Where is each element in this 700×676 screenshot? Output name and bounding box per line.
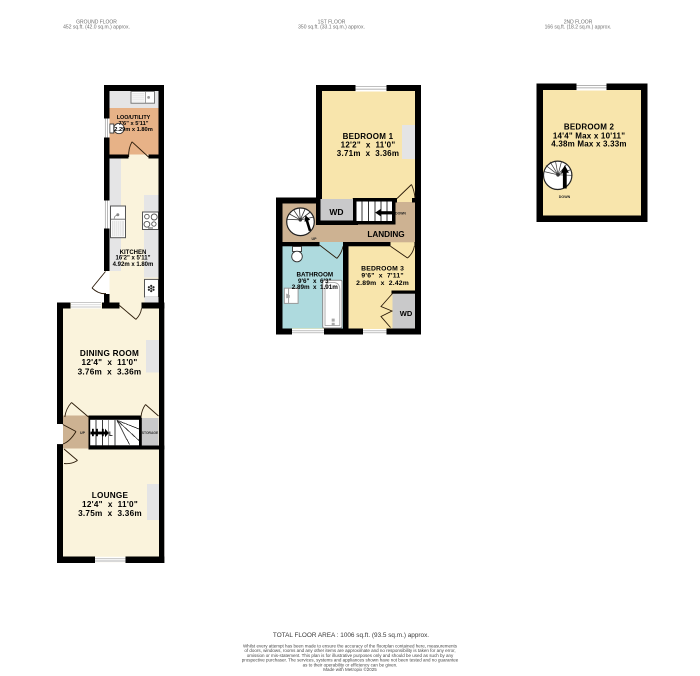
svg-text:TOTAL FLOOR AREA : 1006 sq.ft.: TOTAL FLOOR AREA : 1006 sq.ft. (93.5 sq.… xyxy=(273,632,429,639)
svg-text:12'4" x 11'0": 12'4" x 11'0" xyxy=(82,500,138,509)
svg-text:350 sq.ft. (33.1 sq.m.) approx: 350 sq.ft. (33.1 sq.m.) approx. xyxy=(298,24,365,30)
svg-text:12'4" x 11'0": 12'4" x 11'0" xyxy=(82,358,138,367)
svg-text:3.76m x 3.36m: 3.76m x 3.36m xyxy=(78,367,142,376)
svg-text:16'2" x 5'11": 16'2" x 5'11" xyxy=(116,256,151,262)
svg-text:DOWN: DOWN xyxy=(395,211,406,215)
svg-text:166 sq.ft. (18.2 sq.m.) approx: 166 sq.ft. (18.2 sq.m.) approx. xyxy=(545,24,612,30)
svg-text:9'6" x 7'11": 9'6" x 7'11" xyxy=(361,273,403,280)
svg-text:4.92m x 1.80m: 4.92m x 1.80m xyxy=(113,262,154,268)
svg-text:452 sq.ft. (42.0 sq.m.) approx: 452 sq.ft. (42.0 sq.m.) approx. xyxy=(63,24,130,30)
svg-text:UP: UP xyxy=(80,431,86,435)
svg-text:2.89m x 2.42m: 2.89m x 2.42m xyxy=(356,280,409,287)
svg-text:L: L xyxy=(109,432,113,438)
svg-text:DOWN: DOWN xyxy=(559,195,571,199)
svg-text:3.75m x 3.36m: 3.75m x 3.36m xyxy=(78,509,142,518)
svg-text:Made with Metropix ©2025: Made with Metropix ©2025 xyxy=(323,666,377,672)
svg-text:2.29m x 1.80m: 2.29m x 1.80m xyxy=(114,127,153,133)
svg-text:STORAGE: STORAGE xyxy=(142,431,159,435)
svg-text:DINING ROOM: DINING ROOM xyxy=(80,349,139,358)
svg-text:3.71m x 3.36m: 3.71m x 3.36m xyxy=(337,149,399,158)
svg-text:BEDROOM 2: BEDROOM 2 xyxy=(564,123,615,132)
svg-text:LOUNGE: LOUNGE xyxy=(92,491,129,500)
svg-text:LANDING: LANDING xyxy=(367,230,404,239)
svg-text:UP: UP xyxy=(312,237,318,241)
svg-text:4.38m Max x 3.33m: 4.38m Max x 3.33m xyxy=(551,140,626,149)
svg-text:WD: WD xyxy=(400,309,413,318)
svg-text:WD: WD xyxy=(329,207,343,217)
svg-text:2.89m x 1.91m: 2.89m x 1.91m xyxy=(292,284,339,291)
